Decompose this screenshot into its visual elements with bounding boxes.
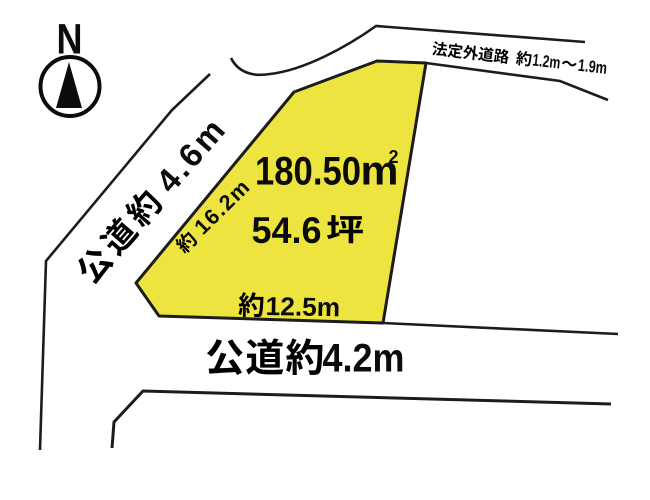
svg-text:1.2m: 1.2m [531,51,561,73]
svg-text:2: 2 [389,147,399,167]
svg-text:54.6: 54.6 [252,209,322,251]
svg-text:1.9m: 1.9m [577,56,608,78]
svg-text:180.50: 180.50 [255,150,361,194]
svg-text:4.2m: 4.2m [323,337,405,381]
svg-text:12.5m: 12.5m [265,291,340,322]
